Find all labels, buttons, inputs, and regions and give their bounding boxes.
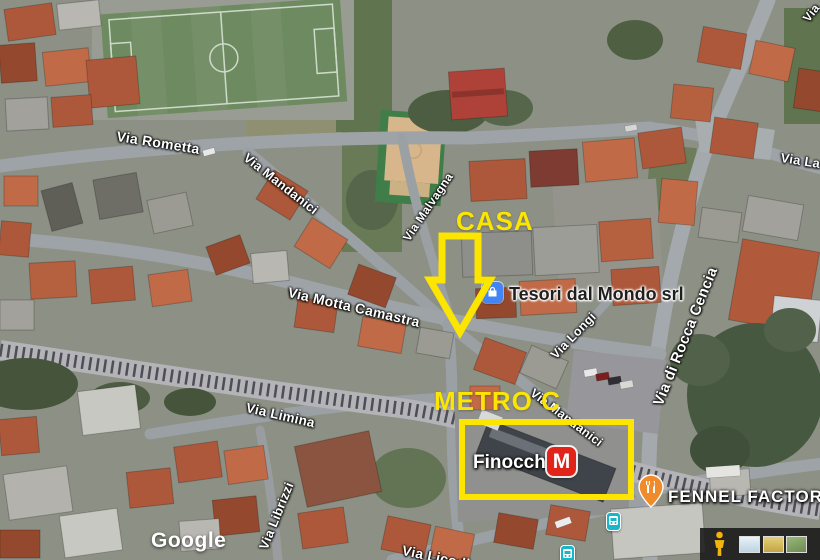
imagery-thumbnail[interactable] — [739, 536, 760, 553]
imagery-thumbnail[interactable] — [763, 536, 784, 553]
bus-stop-icon[interactable] — [560, 545, 575, 560]
satellite-imagery — [0, 0, 820, 560]
poi-label-shop[interactable]: Tesori dal Mondo srl — [509, 284, 684, 305]
map-viewport[interactable]: Via Rometta Via Mandanici Via Malvagna V… — [0, 0, 820, 560]
google-logo[interactable]: Google — [151, 529, 226, 553]
annotation-metro-c: METRO C — [434, 386, 561, 417]
imagery-thumbnail[interactable] — [786, 536, 807, 553]
map-control-bar — [700, 528, 820, 560]
restaurant-pin-icon[interactable] — [638, 474, 664, 508]
poi-label-restaurant[interactable]: FENNEL FACTORY — [668, 487, 820, 507]
pegman-icon[interactable] — [712, 531, 727, 557]
fork-knife-icon — [638, 474, 664, 508]
annotation-highlight-rect — [459, 419, 634, 500]
bus-glyph-icon — [609, 516, 618, 527]
annotation-arrow-down-icon — [420, 230, 500, 340]
bus-stop-icon[interactable] — [606, 512, 621, 531]
bus-glyph-icon — [563, 549, 572, 560]
